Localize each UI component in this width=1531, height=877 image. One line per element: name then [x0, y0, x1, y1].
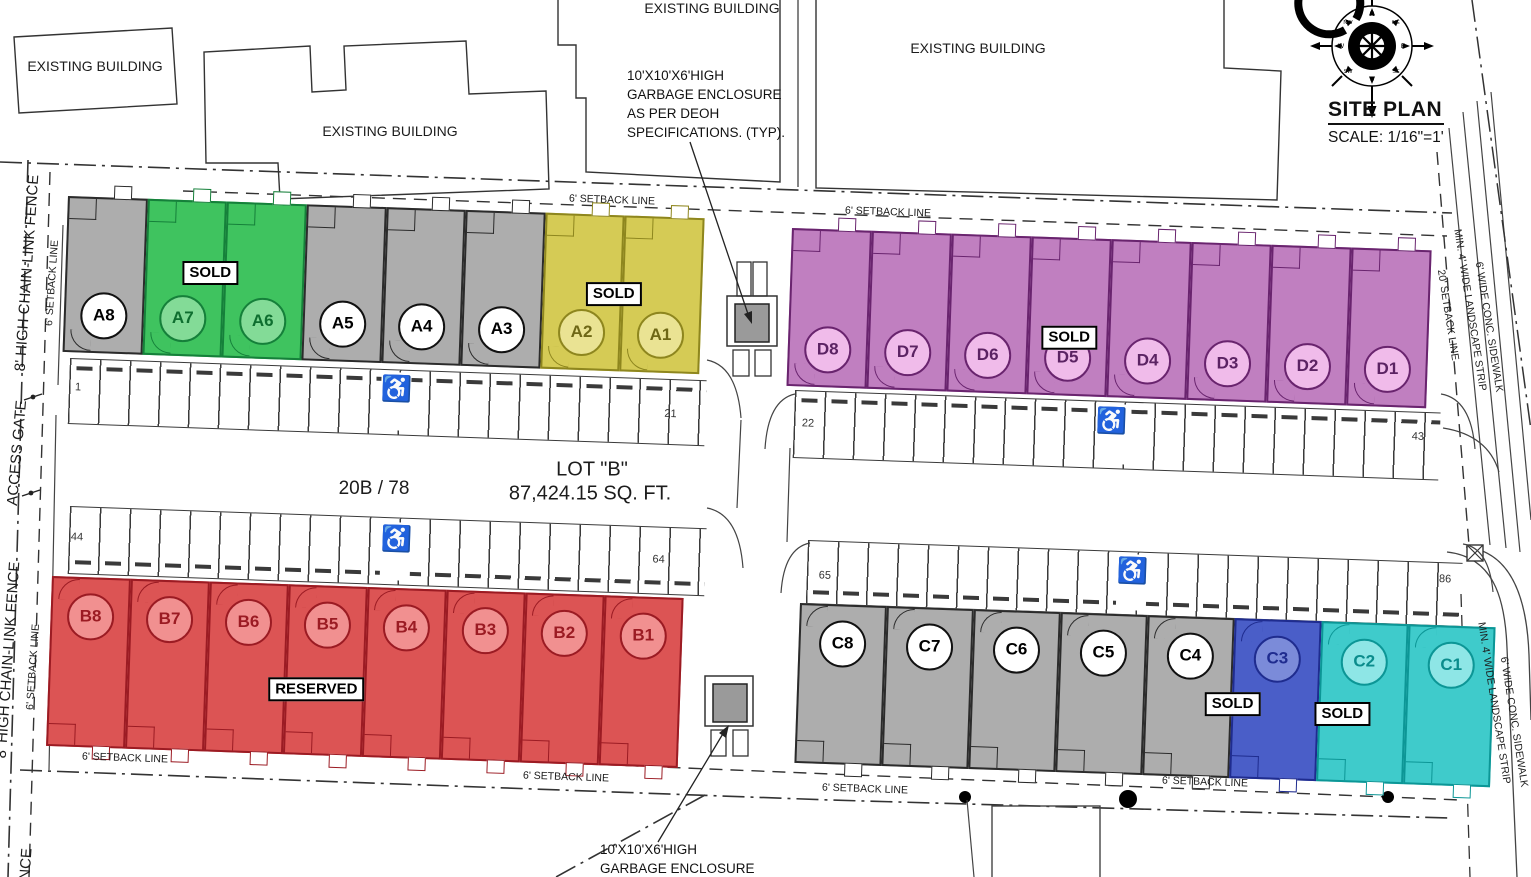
- door-icon: [1158, 229, 1176, 244]
- washroom-icon: [1405, 761, 1433, 783]
- washroom-icon: [793, 230, 821, 252]
- status-label-reserved: RESERVED: [268, 677, 364, 701]
- washroom-icon: [364, 734, 392, 756]
- stall-number: 44: [71, 531, 84, 543]
- unit-D2[interactable]: D2: [1266, 245, 1351, 406]
- washroom-icon: [522, 740, 550, 762]
- washroom-icon: [48, 723, 76, 745]
- compass-letter: SE: [1392, 69, 1400, 75]
- wheelchair-icon: ♿: [1116, 554, 1147, 590]
- unit-label-C7: C7: [906, 624, 953, 671]
- door-icon: [273, 191, 291, 206]
- survey-marker-dot: [959, 791, 971, 803]
- washroom-icon: [796, 740, 824, 762]
- washroom-icon: [285, 731, 313, 753]
- unit-B7[interactable]: B7: [125, 579, 210, 752]
- washroom-icon: [467, 212, 495, 234]
- unit-A5[interactable]: A5: [301, 204, 386, 363]
- unit-label-D8: D8: [804, 326, 851, 373]
- unit-D6[interactable]: D6: [946, 234, 1031, 395]
- door-swing-icon: [1415, 626, 1437, 648]
- door-icon: [407, 757, 425, 772]
- note-line: AS PER DEOH: [627, 104, 785, 123]
- handicap-stall: ♿: [380, 522, 412, 581]
- status-label-sold: SOLD: [586, 282, 642, 306]
- unit-C8[interactable]: C8: [794, 603, 887, 766]
- note-line: 10'X10'X6'HIGH: [600, 840, 755, 859]
- washroom-icon: [1193, 244, 1221, 266]
- status-label-sold: SOLD: [1041, 326, 1097, 350]
- door-icon: [193, 188, 211, 203]
- note-line: 10'X10'X6'HIGH: [627, 66, 785, 85]
- door-icon: [328, 754, 346, 769]
- unit-C7[interactable]: C7: [881, 606, 974, 769]
- handicap-stall: ♿: [1116, 554, 1148, 611]
- washroom-icon: [1057, 749, 1085, 771]
- washroom-icon: [873, 233, 901, 255]
- door-swing-icon: [1328, 623, 1350, 645]
- unit-label-A6: A6: [239, 298, 286, 345]
- unit-label-C6: C6: [992, 627, 1039, 674]
- unit-label-C8: C8: [819, 620, 866, 667]
- wheelchair-icon: ♿: [380, 522, 411, 558]
- gate-post-dot: [31, 395, 36, 400]
- status-label-sold: SOLD: [1314, 702, 1370, 726]
- unit-label-B5: B5: [303, 602, 350, 649]
- lot-area-label: 87,424.15 SQ. FT.: [509, 483, 671, 506]
- unit-label-B8: B8: [67, 593, 114, 640]
- existing-structure-outline-bottom: [992, 806, 1100, 877]
- unit-label-A7: A7: [160, 295, 207, 342]
- existing-building-label: EXISTING BUILDING: [910, 40, 1045, 56]
- washroom-icon: [127, 726, 155, 748]
- unit-B1[interactable]: B1: [599, 595, 684, 768]
- wheelchair-icon: ♿: [1095, 404, 1126, 440]
- handicap-stall: ♿: [1095, 404, 1127, 465]
- building-a: WAREHOUSE BUILDING "A" FOOTPRINT: 10,000…: [63, 196, 705, 374]
- unit-label-D7: D7: [884, 329, 931, 376]
- compass-east-arrow: [1424, 42, 1434, 50]
- unit-B3[interactable]: B3: [441, 590, 526, 763]
- washroom-icon: [388, 209, 416, 231]
- door-icon: [1078, 226, 1096, 241]
- stall-number: 43: [1412, 431, 1425, 443]
- building-c: WAREHOUSE BUILDING "C" FOOTPRINT: 10,000…: [794, 603, 1495, 787]
- compass-letter: NE: [1392, 20, 1400, 26]
- garbage-enclosure-wing: [755, 350, 771, 376]
- unit-label-C4: C4: [1166, 633, 1213, 680]
- existing-building-label: EXISTING BUILDING: [322, 123, 457, 139]
- door-swing-icon: [980, 611, 1002, 633]
- door-icon: [249, 751, 267, 766]
- garbage-enclosure-post: [753, 262, 767, 296]
- leader-arrowhead: [719, 725, 729, 738]
- washroom-icon: [1318, 758, 1346, 780]
- note-line: GARBAGE ENCLOSURE: [627, 85, 785, 104]
- wheelchair-icon: ♿: [380, 372, 411, 408]
- door-swing-icon: [1154, 617, 1176, 639]
- unit-label-C5: C5: [1079, 630, 1126, 677]
- unit-B8[interactable]: B8: [46, 576, 131, 749]
- washroom-icon: [1033, 238, 1061, 260]
- unit-label-B6: B6: [225, 599, 272, 646]
- door-swing-icon: [893, 608, 915, 630]
- unit-C6[interactable]: C6: [968, 609, 1061, 772]
- unit-D8[interactable]: D8: [786, 228, 871, 389]
- unit-label-A5: A5: [319, 301, 366, 348]
- unit-A4[interactable]: A4: [381, 207, 466, 366]
- garbage-enclosure-post: [737, 262, 751, 296]
- unit-label-B1: B1: [619, 613, 666, 660]
- door-icon: [1318, 234, 1336, 249]
- door-icon: [1279, 778, 1297, 793]
- compass-letter: S: [1370, 76, 1375, 83]
- door-icon: [671, 205, 689, 220]
- door-icon: [931, 766, 949, 781]
- handicap-stall: ♿: [380, 372, 412, 431]
- unit-label-D1: D1: [1364, 346, 1411, 393]
- unit-label-A8: A8: [80, 292, 127, 339]
- garbage-enclosure-wing: [733, 730, 748, 756]
- note-line: SPECIFICATIONS. (TYP).: [627, 123, 785, 142]
- stall-number: 21: [664, 408, 677, 420]
- unit-label-B4: B4: [382, 604, 429, 651]
- washroom-icon: [883, 743, 911, 765]
- compass-letter: W: [1338, 43, 1345, 50]
- site-plan: N NE E SE S SW W NW 1 21 ♿ 22 43 ♿ 44 64…: [0, 0, 1531, 877]
- door-icon: [352, 194, 370, 209]
- unit-label-D2: D2: [1284, 343, 1331, 390]
- unit-D3[interactable]: D3: [1186, 242, 1271, 403]
- washroom-icon: [308, 206, 336, 228]
- unit-B5[interactable]: B5: [283, 584, 368, 757]
- washroom-icon: [443, 737, 471, 759]
- existing-building-label: EXISTING BUILDING: [27, 58, 162, 74]
- door-icon: [1453, 784, 1471, 799]
- existing-building-label: EXISTING BUILDING: [644, 0, 779, 16]
- door-swing-icon: [1067, 614, 1089, 636]
- unit-D5[interactable]: D5: [1026, 236, 1111, 397]
- door-icon: [170, 748, 188, 763]
- garbage-enclosure-bottom: [713, 684, 747, 722]
- compass-letter: E: [1401, 43, 1406, 50]
- page-title: SITE PLAN: [1328, 98, 1444, 125]
- survey-marker-dot: [1119, 790, 1137, 808]
- unit-label-B3: B3: [461, 607, 508, 654]
- unit-label-B2: B2: [540, 610, 587, 657]
- door-icon: [918, 220, 936, 235]
- title-block: SITE PLAN SCALE: 1/16"=1': [1328, 98, 1444, 147]
- gate-post-dot: [29, 491, 34, 496]
- door-icon: [432, 197, 450, 212]
- unit-label-C3: C3: [1253, 636, 1300, 683]
- door-icon: [838, 218, 856, 233]
- door-icon: [114, 186, 132, 201]
- washroom-icon: [953, 236, 981, 258]
- washroom-icon: [206, 728, 234, 750]
- unit-label-C2: C2: [1340, 639, 1387, 686]
- unit-label-A2: A2: [558, 309, 605, 356]
- washroom-icon: [1144, 752, 1172, 774]
- unit-C5[interactable]: C5: [1055, 612, 1148, 775]
- status-label-sold: SOLD: [182, 261, 238, 285]
- drive-aisle-curbs: [737, 420, 790, 542]
- unit-label-A4: A4: [398, 303, 445, 350]
- unit-label-D3: D3: [1204, 340, 1251, 387]
- unit-B4[interactable]: B4: [362, 587, 447, 760]
- door-icon: [644, 765, 662, 780]
- curb-return: [1443, 428, 1499, 472]
- compass-letter: N: [1370, 11, 1375, 18]
- door-icon: [1366, 781, 1384, 796]
- door-icon: [512, 200, 530, 215]
- building-b: WAREHOUSE BUILDING "B" FOOTPRINT: 10,000…: [46, 576, 684, 768]
- door-swing-icon: [1241, 620, 1263, 642]
- compass-letter: SW: [1344, 69, 1354, 75]
- unit-D7[interactable]: D7: [866, 231, 951, 392]
- washroom-icon: [149, 201, 177, 223]
- door-icon: [1018, 769, 1036, 784]
- scale-label: SCALE: 1/16"=1': [1328, 129, 1444, 147]
- stall-number: 22: [802, 417, 815, 429]
- compass-west-arrow: [1310, 42, 1320, 50]
- garbage-enclosure-note-bottom: 10'X10'X6'HIGH GARBAGE ENCLOSURE: [600, 840, 755, 877]
- lot-name-label: LOT "B": [556, 459, 628, 482]
- unit-D4[interactable]: D4: [1106, 239, 1191, 400]
- unit-label-C1: C1: [1427, 642, 1474, 689]
- unit-B6[interactable]: B6: [204, 582, 289, 755]
- lot-line-bottom: [967, 800, 974, 877]
- garbage-enclosure-note-top: 10'X10'X6'HIGH GARBAGE ENCLOSURE AS PER …: [627, 66, 785, 142]
- washroom-icon: [69, 198, 97, 220]
- washroom-icon: [1113, 241, 1141, 263]
- washroom-icon: [1273, 247, 1301, 269]
- building-d: WAREHOUSE BUILDING "D" FOOTPRINT: 10,000…: [786, 228, 1431, 408]
- door-icon: [1105, 772, 1123, 787]
- unit-label-B7: B7: [146, 596, 193, 643]
- stall-number: 1: [75, 381, 82, 393]
- unit-A8[interactable]: A8: [63, 196, 148, 355]
- washroom-icon: [970, 746, 998, 768]
- fence-label-partial: NCE: [16, 848, 35, 877]
- lot-parcel-label: 20B / 78: [339, 478, 410, 500]
- unit-label-D4: D4: [1124, 337, 1171, 384]
- compass-letter: NW: [1343, 20, 1353, 26]
- door-icon: [844, 763, 862, 778]
- stall-number: 65: [819, 569, 832, 581]
- stall-number: 86: [1439, 573, 1452, 585]
- door-icon: [486, 759, 504, 774]
- washroom-icon: [626, 218, 654, 240]
- garbage-enclosure-wing: [733, 350, 749, 376]
- unit-label-D6: D6: [964, 332, 1011, 379]
- door-swing-icon: [806, 605, 828, 627]
- existing-building-outline-4: [816, 0, 1281, 200]
- unit-D1[interactable]: D1: [1346, 248, 1431, 409]
- stall-number: 64: [652, 553, 665, 565]
- washroom-icon: [547, 215, 575, 237]
- door-icon: [1238, 232, 1256, 247]
- unit-label-A1: A1: [637, 312, 684, 359]
- door-icon: [998, 223, 1016, 238]
- unit-B2[interactable]: B2: [520, 593, 605, 766]
- washroom-icon: [228, 204, 256, 226]
- door-icon: [1398, 237, 1416, 252]
- washroom-icon: [1231, 755, 1259, 777]
- washroom-icon: [1353, 250, 1381, 272]
- washroom-icon: [601, 742, 629, 764]
- note-line: GARBAGE ENCLOSURE: [600, 859, 755, 877]
- status-label-sold: SOLD: [1205, 692, 1261, 716]
- unit-label-A3: A3: [478, 306, 525, 353]
- unit-A3[interactable]: A3: [460, 210, 545, 369]
